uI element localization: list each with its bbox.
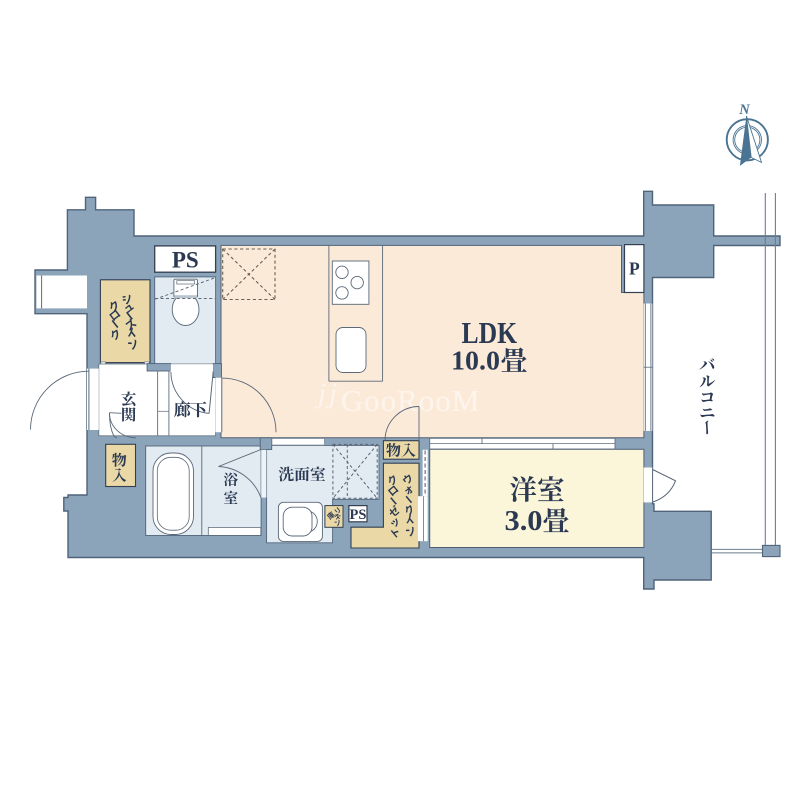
svg-text:3.0: 3.0: [505, 506, 543, 537]
svg-text:jj: jj: [314, 378, 340, 410]
svg-text:P: P: [629, 259, 640, 279]
svg-text:10.0: 10.0: [451, 346, 500, 376]
svg-text:PS: PS: [172, 247, 199, 272]
svg-text:PS: PS: [350, 507, 367, 523]
svg-text:GooRooM: GooRooM: [341, 383, 481, 418]
svg-text:N: N: [738, 102, 750, 118]
